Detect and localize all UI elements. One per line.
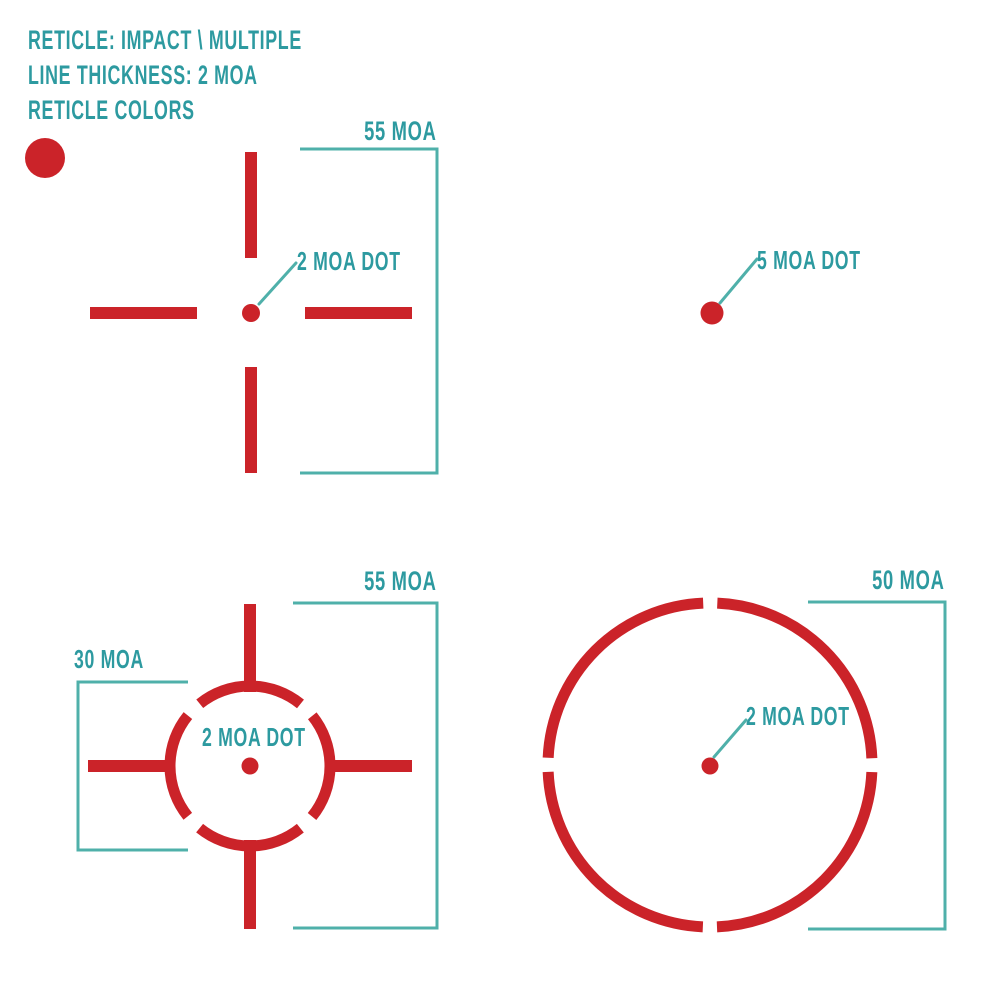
reticle-top-right-dot [701,259,758,325]
crosshair-left-bar [88,760,174,772]
reticle-bottom-right-circle [541,596,945,934]
title-reticle-name: RETICLE: IMPACT \ MULTIPLE [28,27,443,54]
center-dot-2moa [242,304,260,322]
reticle-top-left-crosshair [90,149,437,473]
crosshair-left-bar [90,307,197,319]
leader-line-5moa [720,259,757,303]
crosshair-bottom-bar [244,840,256,929]
dimension-label-50moa: 50 MOA [838,567,945,594]
leader-line-2moa [259,263,296,304]
title-line-thickness: LINE THICKNESS: 2 MOA [28,62,376,89]
reticle-shapes-layer [0,0,1000,1000]
reticle-color-swatch-dot [25,138,65,178]
dimension-label-30moa: 30 MOA [74,646,177,672]
center-dot-2moa [702,758,719,775]
dot-label-2moa-bottom-right: 2 MOA DOT [746,703,898,729]
dot-label-2moa-top-left: 2 MOA DOT [297,248,449,274]
crosshair-top-bar [244,604,256,692]
crosshair-bottom-bar [245,367,257,473]
reticle-spec-diagram: RETICLE: IMPACT \ MULTIPLE LINE THICKNES… [0,0,1000,1000]
dimension-label-55moa-bottom-left: 55 MOA [330,568,437,595]
title-reticle-colors: RETICLE COLORS [28,97,281,124]
crosshair-right-bar [326,760,412,772]
center-dot-2moa [242,758,259,775]
dimension-label-55moa-top-left: 55 MOA [330,118,437,145]
crosshair-right-bar [305,307,412,319]
leader-line-2moa [714,720,746,757]
dot-label-5moa-top-right: 5 MOA DOT [757,247,909,273]
dot-label-2moa-bottom-left: 2 MOA DOT [202,724,354,750]
crosshair-top-bar [245,152,257,258]
center-dot-5moa [701,302,724,325]
